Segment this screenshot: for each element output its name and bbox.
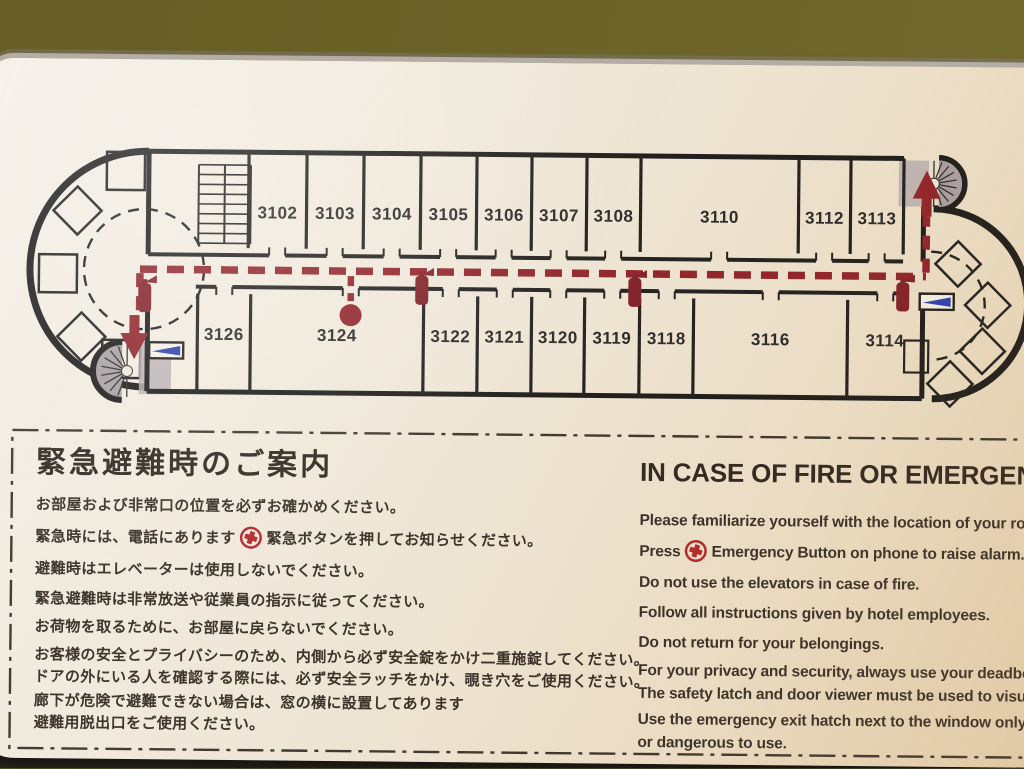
room-label: 3126 [204, 325, 244, 344]
emergency-button-icon [684, 539, 707, 562]
current-location-marker [339, 304, 361, 326]
room-label: 3110 [700, 207, 739, 226]
room-label: 3105 [429, 205, 469, 224]
room-label: 3113 [857, 209, 896, 228]
sign-panel: 3102310331043105310631073108311031123113… [0, 58, 1024, 769]
en-instruction-line-3: Do not use the elevators in case of fire… [639, 571, 1024, 599]
photo-of-emergency-sign: { "sign": { "jp": { "heading": "緊急避難時のご案… [0, 0, 1024, 768]
jp-instruction-line-5: お荷物を取るために、お部屋に戻らないでください。 [34, 616, 626, 643]
room-label: 3112 [805, 209, 844, 228]
emergency-exit-flag-icon [920, 294, 954, 310]
room-label: 3116 [751, 330, 790, 349]
rooms: 3102310331043105310631073108311031123113… [147, 151, 924, 398]
room-label: 3114 [865, 331, 904, 350]
room-label: 3106 [484, 205, 524, 224]
jp-instruction-line-2: 緊急時には、電話にあります緊急ボタンを押してお知らせください。 [35, 524, 627, 553]
room-label: 3102 [258, 203, 298, 222]
room-label: 3103 [315, 204, 355, 223]
en-heading: IN CASE OF FIRE OR EMERGENCY [640, 456, 1024, 493]
emergency-button-icon [239, 526, 262, 549]
en-instruction-line-7: The safety latch and door viewer must be… [638, 682, 1024, 710]
straight-stairs-icon [198, 165, 251, 244]
room-label: 3121 [484, 327, 524, 346]
en-instructions: IN CASE OF FIRE OR EMERGENCY Please fami… [637, 456, 1024, 759]
emergency-exit-flag-icon [149, 342, 183, 358]
room-label: 3120 [538, 328, 578, 347]
jp-instructions: 緊急避難時のご案内 お部屋および非常口の位置を必ずお確かめください。緊急時には、… [34, 446, 629, 739]
room-label: 3108 [594, 206, 634, 225]
jp-instruction-line-3: 避難時はエレベーターは使用しないでください。 [35, 558, 627, 585]
en-instruction-line-1: Please familiarize yourself with the loc… [639, 509, 1024, 537]
en-instruction-line-5: Do not return for your belongings. [638, 631, 1024, 659]
room-label: 3104 [372, 204, 412, 223]
jp-instruction-line-1: お部屋および非常口の位置を必ずお確かめください。 [36, 494, 628, 521]
room-label: 3122 [430, 327, 470, 346]
room-label: 3107 [539, 206, 579, 225]
jp-instruction-line-7: ドアの外にいる人を確認する際には、必ず安全ラッチをかけ、覗き穴をご使用ください。 [34, 666, 626, 693]
room-label: 3118 [647, 329, 686, 348]
en-instruction-line-4: Follow all instructions given by hotel e… [639, 601, 1024, 629]
jp-heading: 緊急避難時のご案内 [36, 446, 628, 486]
jp-instruction-line-4: 緊急避難時は非常放送や従業員の指示に従ってください。 [35, 588, 627, 615]
room-label: 3124 [317, 326, 357, 345]
room-label: 3119 [592, 328, 631, 347]
main-wing-walls [147, 151, 924, 398]
en-instruction-line-2: PressEmergency Button on phone to raise … [639, 539, 1024, 568]
